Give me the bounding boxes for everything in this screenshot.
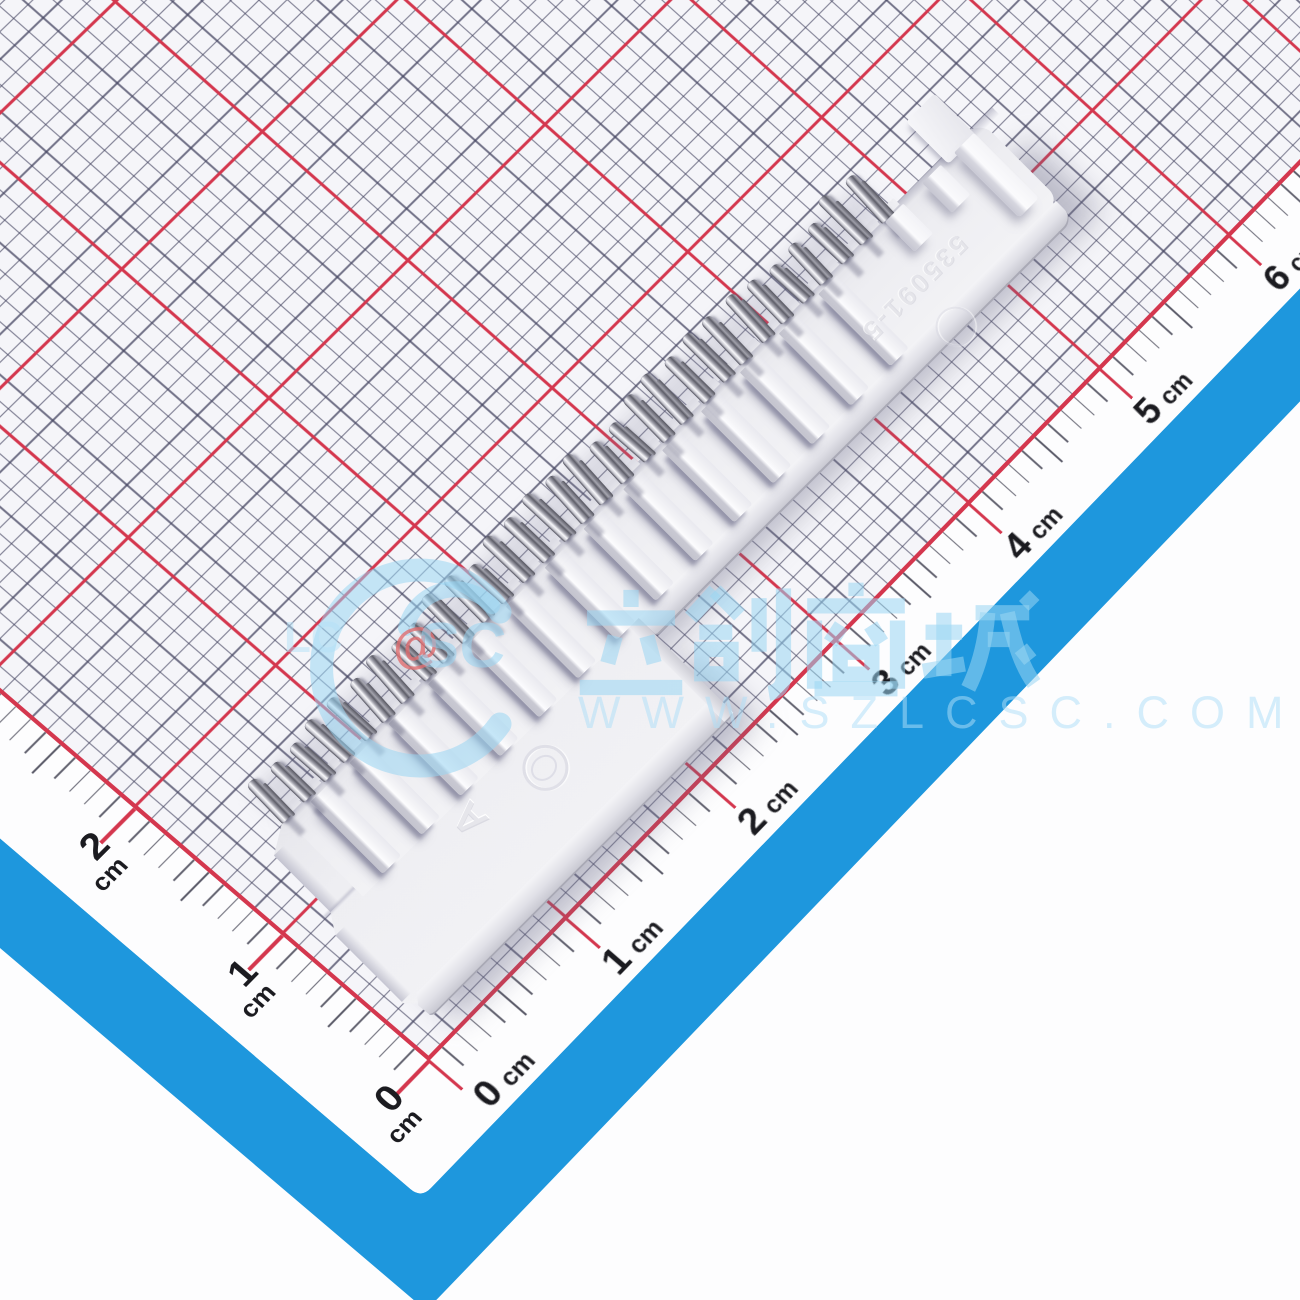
svg-text:SC: SC xyxy=(414,609,508,681)
svg-text:WWW.SZLCSC.COM: WWW.SZLCSC.COM xyxy=(578,687,1300,738)
svg-text:LC: LC xyxy=(284,613,343,662)
